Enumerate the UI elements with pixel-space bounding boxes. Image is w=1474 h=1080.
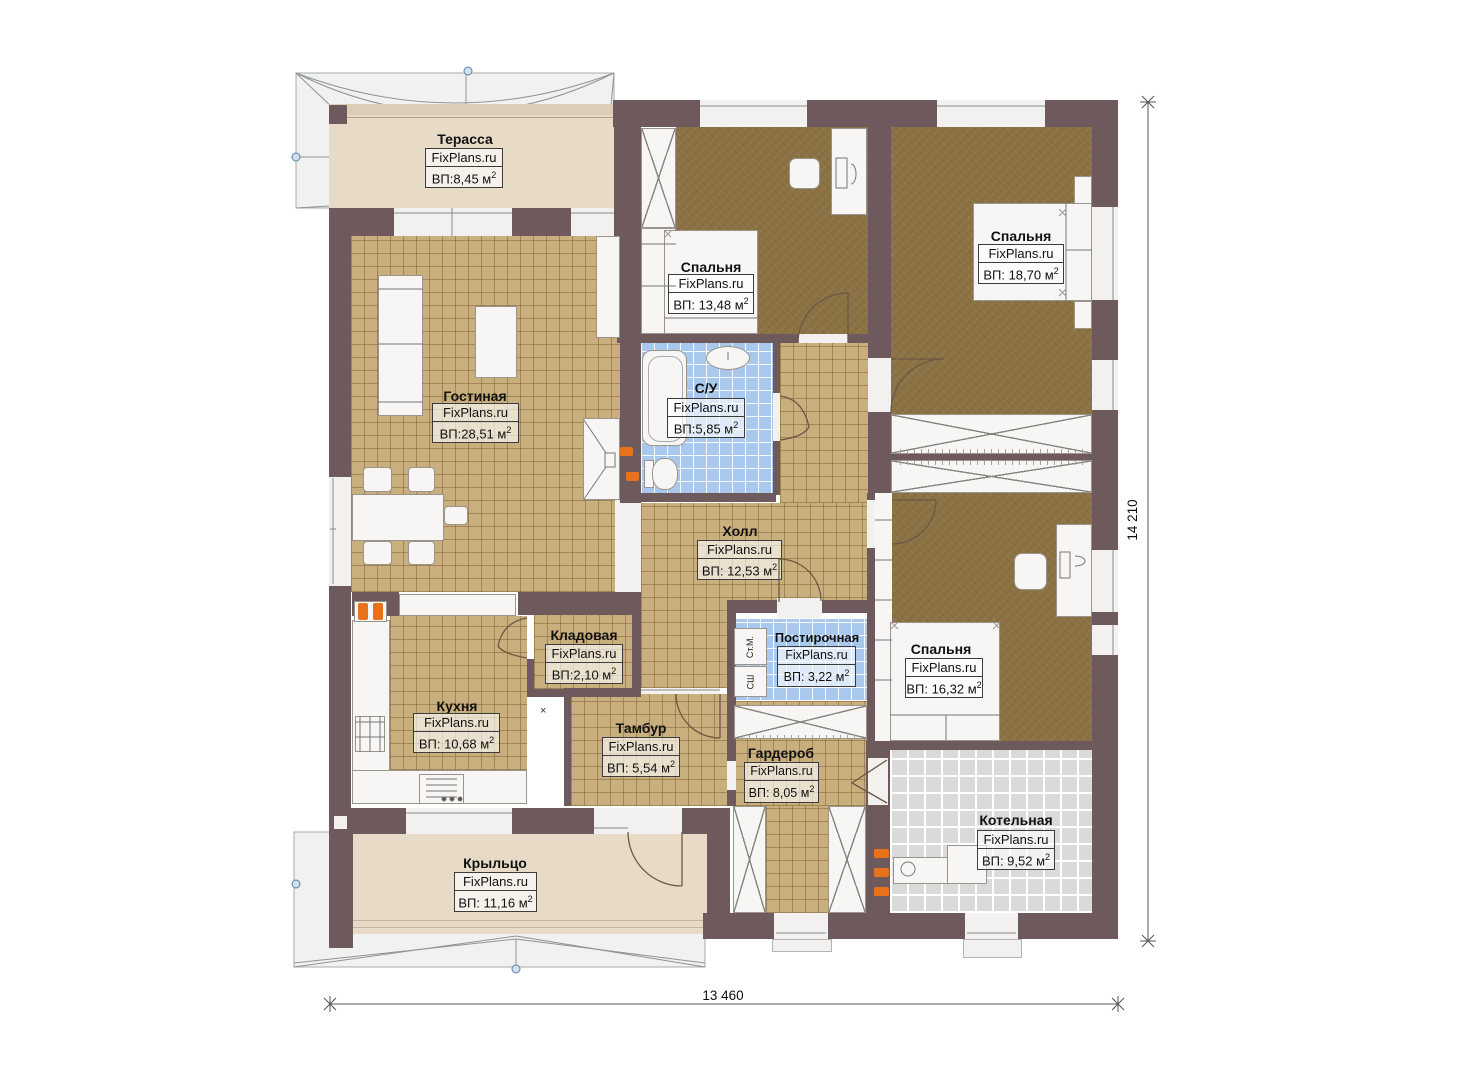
svg-text:13 460: 13 460 [702, 988, 743, 1003]
svg-text:14 210: 14 210 [1125, 499, 1140, 540]
